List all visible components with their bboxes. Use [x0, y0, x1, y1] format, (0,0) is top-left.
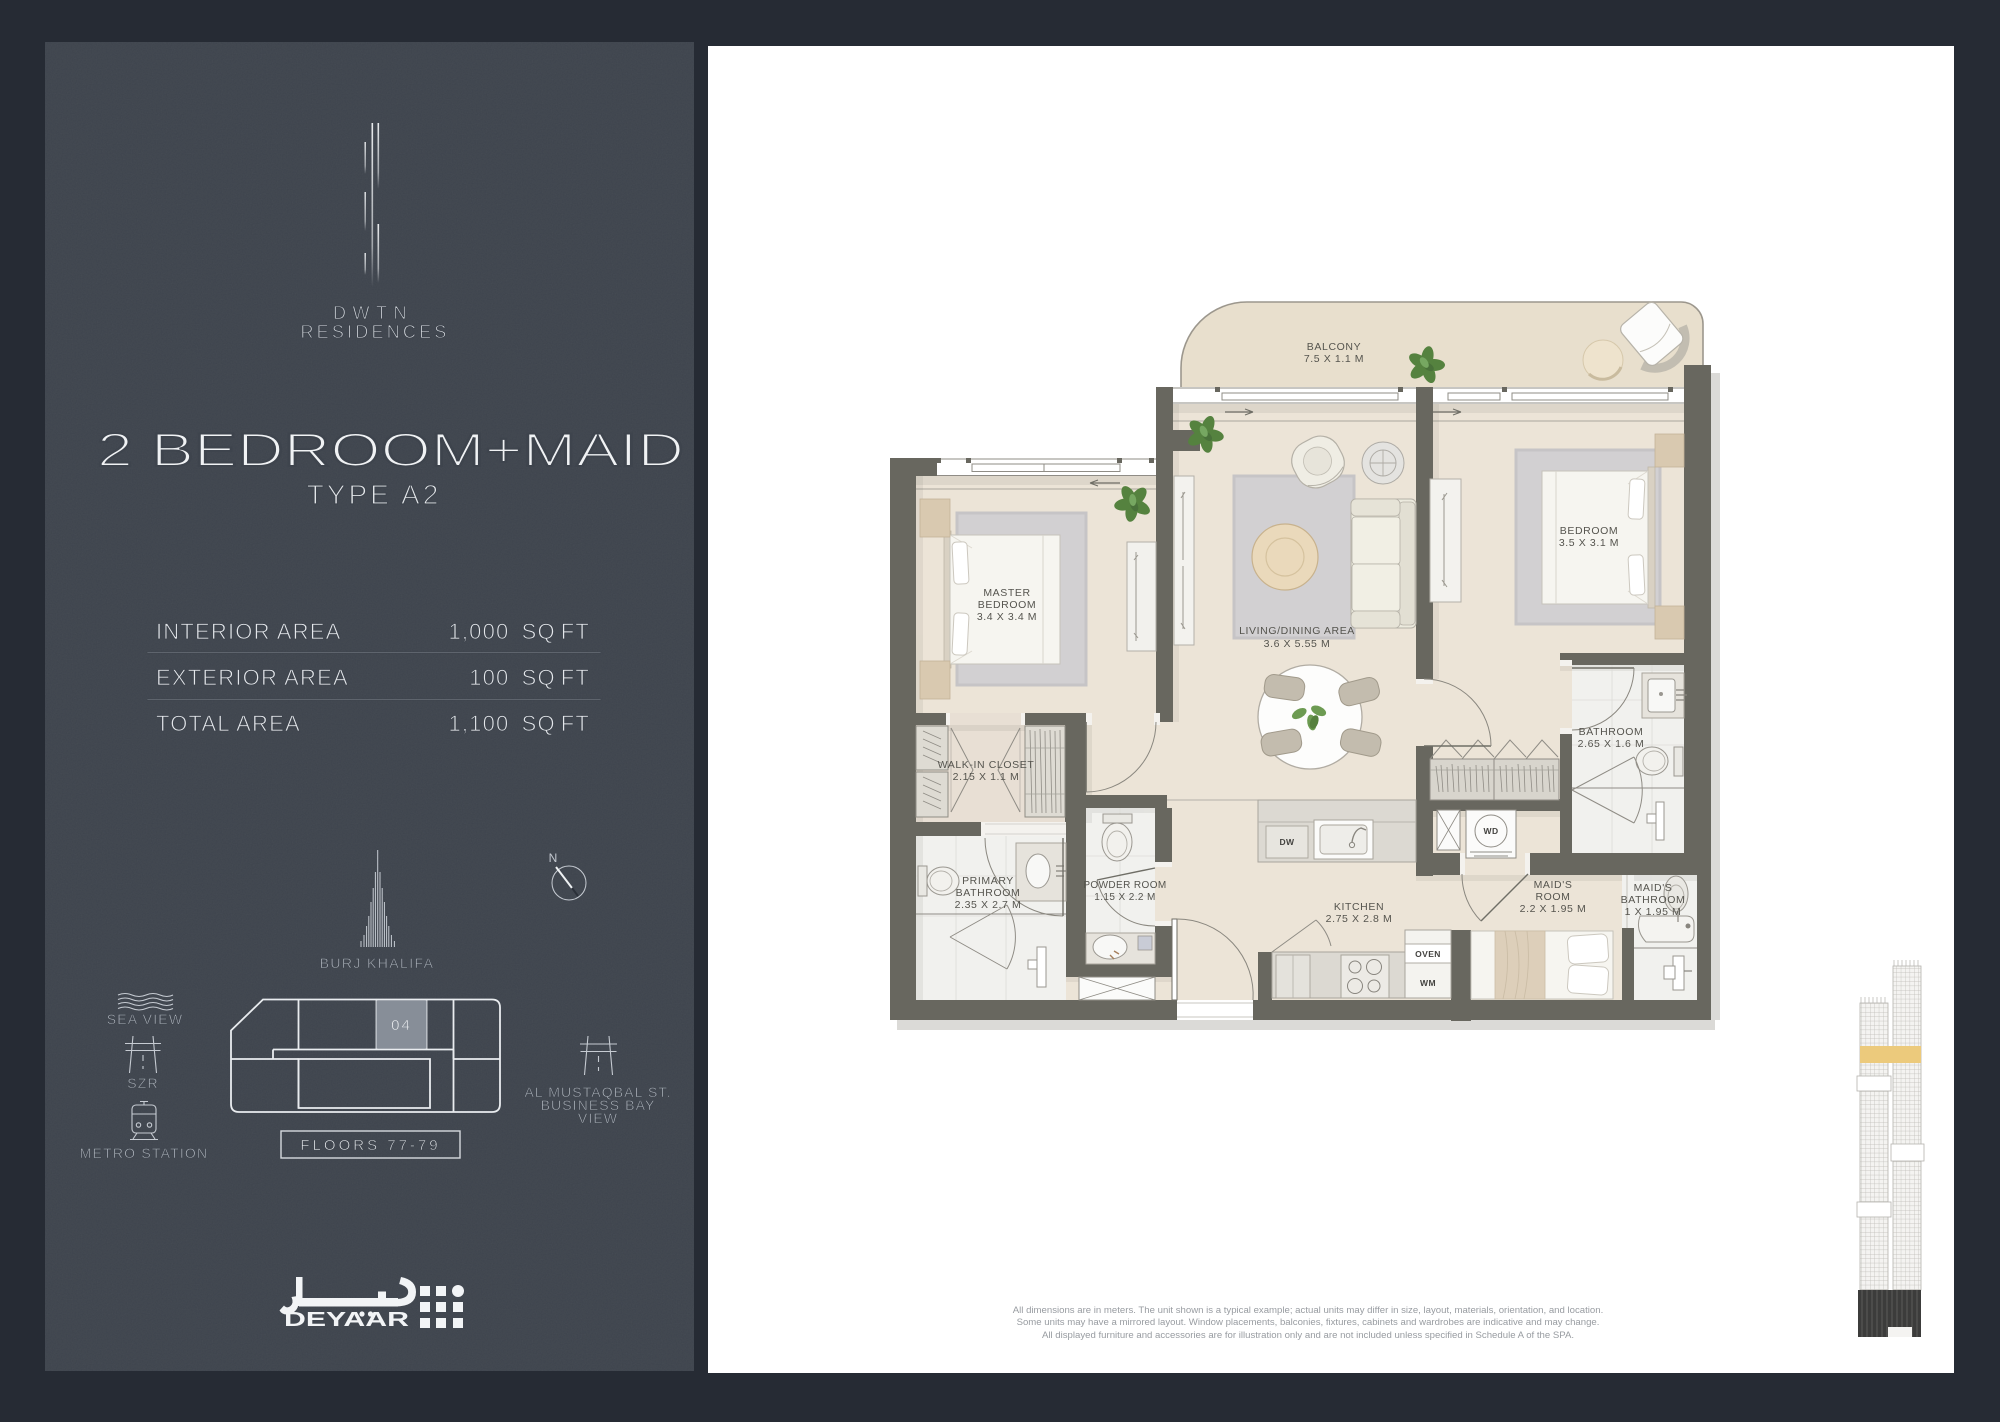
svg-text:WD: WD	[1484, 826, 1499, 836]
svg-text:VIEW: VIEW	[578, 1110, 618, 1126]
svg-text:TYPE A2: TYPE A2	[307, 479, 442, 510]
svg-text:METRO STATION: METRO STATION	[80, 1145, 209, 1161]
svg-text:TOTAL AREA: TOTAL AREA	[156, 711, 301, 736]
svg-text:3.4 X 3.4 M: 3.4 X 3.4 M	[977, 611, 1037, 623]
svg-text:MASTER: MASTER	[983, 587, 1030, 599]
svg-text:3.6 X 5.55 M: 3.6 X 5.55 M	[1264, 638, 1331, 650]
svg-text:PRIMARY: PRIMARY	[962, 875, 1014, 887]
svg-text:2.15 X 1.1 M: 2.15 X 1.1 M	[953, 771, 1020, 783]
svg-text:WALK-IN CLOSET: WALK-IN CLOSET	[938, 759, 1035, 771]
svg-text:N: N	[549, 851, 558, 865]
svg-text:1.15 X 2.2 M: 1.15 X 2.2 M	[1094, 892, 1156, 903]
svg-text:2.2 X 1.95 M: 2.2 X 1.95 M	[1520, 903, 1587, 915]
svg-text:SZR: SZR	[127, 1075, 159, 1091]
svg-text:04: 04	[391, 1017, 412, 1034]
svg-text:2.65 X 1.6 M: 2.65 X 1.6 M	[1578, 738, 1645, 750]
svg-text:BURJ KHALIFA: BURJ KHALIFA	[320, 955, 435, 971]
svg-text:DW: DW	[1280, 837, 1296, 847]
svg-text:BEDROOM: BEDROOM	[1560, 525, 1618, 537]
svg-text:BATHROOM: BATHROOM	[1621, 894, 1686, 906]
svg-text:DEYAAR: DEYAAR	[284, 1309, 410, 1331]
svg-text:MAID'S: MAID'S	[1534, 879, 1573, 891]
svg-text:LIVING/DINING AREA: LIVING/DINING AREA	[1239, 625, 1355, 637]
svg-text:SEA VIEW: SEA VIEW	[107, 1011, 184, 1027]
svg-text:MAID'S: MAID'S	[1634, 882, 1673, 894]
svg-text:1 X 1.95 M: 1 X 1.95 M	[1625, 906, 1682, 918]
svg-text:DWTN: DWTN	[333, 303, 413, 323]
svg-text:INTERIOR AREA: INTERIOR AREA	[156, 619, 342, 644]
svg-text:1,100 SQ FT: 1,100 SQ FT	[448, 711, 590, 736]
svg-text:WM: WM	[1420, 978, 1436, 988]
svg-text:KITCHEN: KITCHEN	[1334, 901, 1384, 913]
svg-text:ROOM: ROOM	[1535, 891, 1570, 903]
svg-text:2 BEDROOM+MAID: 2 BEDROOM+MAID	[97, 423, 684, 476]
svg-text:2.75 X 2.8 M: 2.75 X 2.8 M	[1326, 913, 1393, 925]
svg-text:100 SQ FT: 100 SQ FT	[469, 665, 590, 690]
svg-text:1,000 SQ FT: 1,000 SQ FT	[448, 619, 590, 644]
svg-text:EXTERIOR AREA: EXTERIOR AREA	[156, 665, 349, 690]
svg-text:RESIDENCES: RESIDENCES	[300, 322, 449, 342]
svg-text:BATHROOM: BATHROOM	[1579, 726, 1644, 738]
svg-text:FLOORS 77-79: FLOORS 77-79	[300, 1137, 440, 1154]
svg-text:2.35 X 2.7 M: 2.35 X 2.7 M	[955, 899, 1022, 911]
svg-text:BATHROOM: BATHROOM	[956, 887, 1021, 899]
svg-text:3.5 X 3.1 M: 3.5 X 3.1 M	[1559, 537, 1619, 549]
svg-text:7.5 X 1.1 M: 7.5 X 1.1 M	[1304, 353, 1364, 365]
svg-text:BEDROOM: BEDROOM	[978, 599, 1036, 611]
svg-text:BALCONY: BALCONY	[1307, 341, 1361, 353]
svg-text:POWDER ROOM: POWDER ROOM	[1083, 880, 1166, 891]
svg-text:OVEN: OVEN	[1415, 949, 1441, 959]
